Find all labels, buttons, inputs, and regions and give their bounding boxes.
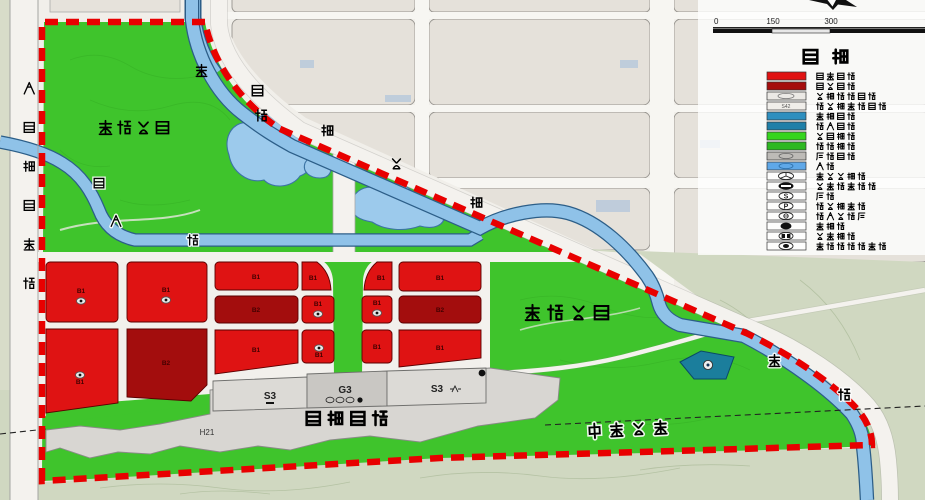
svg-text:B1: B1 bbox=[377, 275, 386, 282]
svg-text:S42: S42 bbox=[782, 104, 791, 110]
svg-text:B1: B1 bbox=[77, 288, 86, 295]
svg-text:B1: B1 bbox=[252, 347, 261, 354]
svg-text:S3: S3 bbox=[264, 391, 277, 402]
svg-text:S3: S3 bbox=[431, 384, 444, 395]
svg-text:B2: B2 bbox=[436, 307, 445, 314]
svg-text:300: 300 bbox=[824, 17, 838, 26]
svg-text:B1: B1 bbox=[314, 301, 323, 308]
svg-text:150: 150 bbox=[766, 17, 780, 26]
svg-text:B1: B1 bbox=[436, 275, 445, 282]
svg-text:H21: H21 bbox=[200, 428, 215, 437]
svg-text:B1: B1 bbox=[373, 300, 382, 307]
svg-text:B1: B1 bbox=[162, 287, 171, 294]
svg-text:B2: B2 bbox=[162, 360, 171, 367]
svg-text:G3: G3 bbox=[338, 385, 352, 396]
svg-text:B2: B2 bbox=[252, 307, 261, 314]
svg-text:0: 0 bbox=[714, 17, 719, 26]
svg-text:B1: B1 bbox=[76, 379, 85, 386]
svg-text:B1: B1 bbox=[315, 352, 324, 359]
svg-text:S: S bbox=[784, 194, 789, 201]
svg-text:B1: B1 bbox=[252, 274, 261, 281]
svg-text:P: P bbox=[784, 204, 789, 211]
svg-text:B1: B1 bbox=[309, 275, 318, 282]
svg-text:B1: B1 bbox=[436, 345, 445, 352]
svg-text:B1: B1 bbox=[373, 344, 382, 351]
